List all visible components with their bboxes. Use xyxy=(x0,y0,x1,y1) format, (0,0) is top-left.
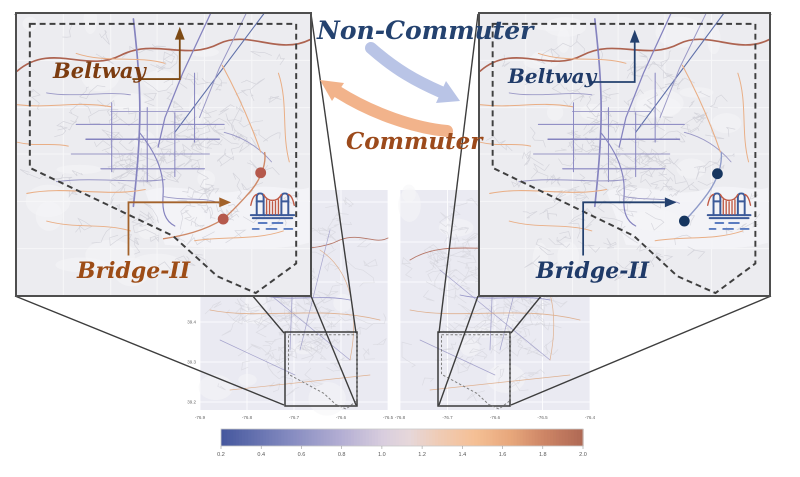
mini-map-right-x-tick: -76.7 xyxy=(442,415,453,420)
street-noise-line xyxy=(268,96,281,102)
mini-map-left-x-tick: -76.9 xyxy=(195,415,206,420)
street-noise-line xyxy=(218,149,227,161)
mini-map-right-x-tick: -76.6 xyxy=(490,415,501,420)
mini-map-left-y-tick: 39.3 xyxy=(187,360,196,365)
bridge-endpoint-dot xyxy=(679,216,690,227)
terrain-patch xyxy=(631,210,682,231)
street-noise-line xyxy=(94,141,112,151)
street-noise-line xyxy=(111,185,126,205)
street-noise-line xyxy=(177,124,190,135)
terrain-patch xyxy=(636,96,681,119)
street-noise-line xyxy=(62,23,72,37)
terrain-patch xyxy=(712,113,742,133)
terrain-patch xyxy=(308,382,345,416)
arrow-up-head xyxy=(175,27,185,40)
street-noise-line xyxy=(539,210,556,219)
bridge-label: Bridge-II xyxy=(536,258,649,284)
street-noise-line xyxy=(603,88,619,96)
street-noise-line xyxy=(531,164,549,179)
street-noise-line xyxy=(603,238,616,248)
street-noise-line xyxy=(264,165,279,175)
colorbar-tick-label: 1.6 xyxy=(499,452,507,458)
street-noise-line xyxy=(530,127,545,147)
street-noise-line xyxy=(213,124,239,144)
terrain-patch xyxy=(143,70,177,91)
mini-map-right-x-tick: -76.5 xyxy=(537,415,548,420)
street-noise-line xyxy=(251,51,272,56)
colorbar-gradient xyxy=(221,429,584,446)
street-noise-line xyxy=(578,241,600,252)
street-noise-line xyxy=(710,95,727,108)
street-noise-line xyxy=(219,154,233,167)
street-noise-line xyxy=(663,117,673,125)
commuter-label: Commuter xyxy=(346,128,482,155)
street-noise-line xyxy=(198,124,215,146)
street-noise-line xyxy=(635,153,653,169)
colorbar-ticks: 0.20.40.60.81.01.21.41.61.82.0 xyxy=(217,446,587,458)
arrow-up-head xyxy=(630,30,640,43)
street-noise-line xyxy=(577,35,585,54)
terrain-patch xyxy=(199,375,233,400)
street-noise-line xyxy=(551,176,561,186)
street-noise-line xyxy=(557,236,567,242)
mini-map-left-x-tick: -76.8 xyxy=(242,415,253,420)
colorbar-tick-label: 1.2 xyxy=(418,452,426,458)
terrain-patch xyxy=(677,158,707,178)
street-noise-line xyxy=(175,163,185,181)
bridge-label: Bridge-II xyxy=(77,258,190,284)
non-commuter-map-panel: Beltway Bridge-II xyxy=(478,12,771,297)
street-noise-line xyxy=(173,101,183,110)
mini-map-right-x-tick: -76.4 xyxy=(585,415,596,420)
terrain-patch xyxy=(547,104,563,121)
street-noise-line xyxy=(568,130,581,137)
street-noise-line xyxy=(68,120,77,129)
mini-map-left-x-tick: -76.7 xyxy=(289,415,300,420)
street-noise-line xyxy=(100,30,110,44)
street-noise-line xyxy=(604,169,615,181)
street-noise-line xyxy=(263,133,280,142)
street-noise-line xyxy=(559,232,570,239)
terrain-patch xyxy=(544,17,586,37)
street-noise-line xyxy=(142,164,146,171)
mini-map-left-y-tick: 39.4 xyxy=(187,320,196,325)
beltway-label: Beltway xyxy=(53,58,146,83)
terrain-patch xyxy=(182,206,204,241)
figure-canvas: -76.9-76.8-76.7-76.6-76.5-76.8-76.7-76.6… xyxy=(0,0,800,477)
mini-map-right-x-tick: -76.8 xyxy=(395,415,406,420)
colorbar: 0.20.40.60.81.01.21.41.61.82.0 xyxy=(217,429,587,458)
street-noise-line xyxy=(661,51,671,68)
street-noise-line xyxy=(703,154,734,168)
terrain-patch xyxy=(36,201,63,231)
terrain-patch xyxy=(486,364,525,393)
street-noise-line xyxy=(209,125,224,135)
street-noise-line xyxy=(134,238,140,254)
street-noise-line xyxy=(143,173,160,187)
beltway-label: Beltway xyxy=(508,64,596,88)
street-noise-line xyxy=(124,188,135,201)
terrain-patch xyxy=(398,188,421,222)
colorbar-tick-label: 0.4 xyxy=(257,452,265,458)
street-noise-line xyxy=(689,101,694,108)
street-noise-line xyxy=(241,79,264,90)
colorbar-tick-label: 1.0 xyxy=(378,452,386,458)
mini-map-left-x-tick: -76.5 xyxy=(383,415,394,420)
street-noise-line xyxy=(29,90,40,110)
terrain-patch xyxy=(56,165,102,174)
street-noise-line xyxy=(192,144,208,153)
street-noise-line xyxy=(652,131,686,142)
street-noise-line xyxy=(522,153,530,159)
street-noise-line xyxy=(140,211,153,221)
terrain-patch xyxy=(238,374,256,386)
street-noise-line xyxy=(665,75,678,85)
street-noise-line xyxy=(57,112,78,130)
street-noise-line xyxy=(635,135,645,142)
colorbar-tick-label: 1.8 xyxy=(539,452,547,458)
street-noise-line xyxy=(277,54,285,65)
street-noise-line xyxy=(167,171,176,177)
colorbar-tick-label: 0.6 xyxy=(298,452,306,458)
mini-map-left-y-tick: 39.2 xyxy=(187,400,196,405)
terrain-patch xyxy=(439,218,474,236)
bridge-endpoint-dot xyxy=(255,167,266,178)
street-noise-line xyxy=(627,64,646,71)
bridge-endpoint-dot xyxy=(712,168,723,179)
street-noise-line xyxy=(109,113,138,126)
street-noise-line xyxy=(140,212,154,219)
colorbar-tick-label: 1.4 xyxy=(459,452,467,458)
terrain-patch xyxy=(333,294,352,312)
street-noise-line xyxy=(627,72,652,81)
commuter-map-panel: Beltway Bridge-II xyxy=(15,12,312,297)
mini-map-left-x-tick: -76.6 xyxy=(336,415,347,420)
colorbar-tick-label: 0.2 xyxy=(217,452,225,458)
street-noise-line xyxy=(184,159,192,167)
street-noise-line xyxy=(523,211,537,218)
street-noise-line xyxy=(576,197,587,202)
non-commuter-label: Non-Commuter xyxy=(317,16,533,45)
colorbar-tick-label: 0.8 xyxy=(338,452,346,458)
street-noise-line xyxy=(650,117,664,131)
street-noise-line xyxy=(555,149,567,151)
colorbar-tick-label: 2.0 xyxy=(579,452,587,458)
street-noise-line xyxy=(584,218,596,230)
street-noise-line xyxy=(163,49,176,64)
bridge-endpoint-dot xyxy=(218,214,229,225)
street-noise-line xyxy=(219,105,235,115)
street-noise-line xyxy=(666,178,694,193)
